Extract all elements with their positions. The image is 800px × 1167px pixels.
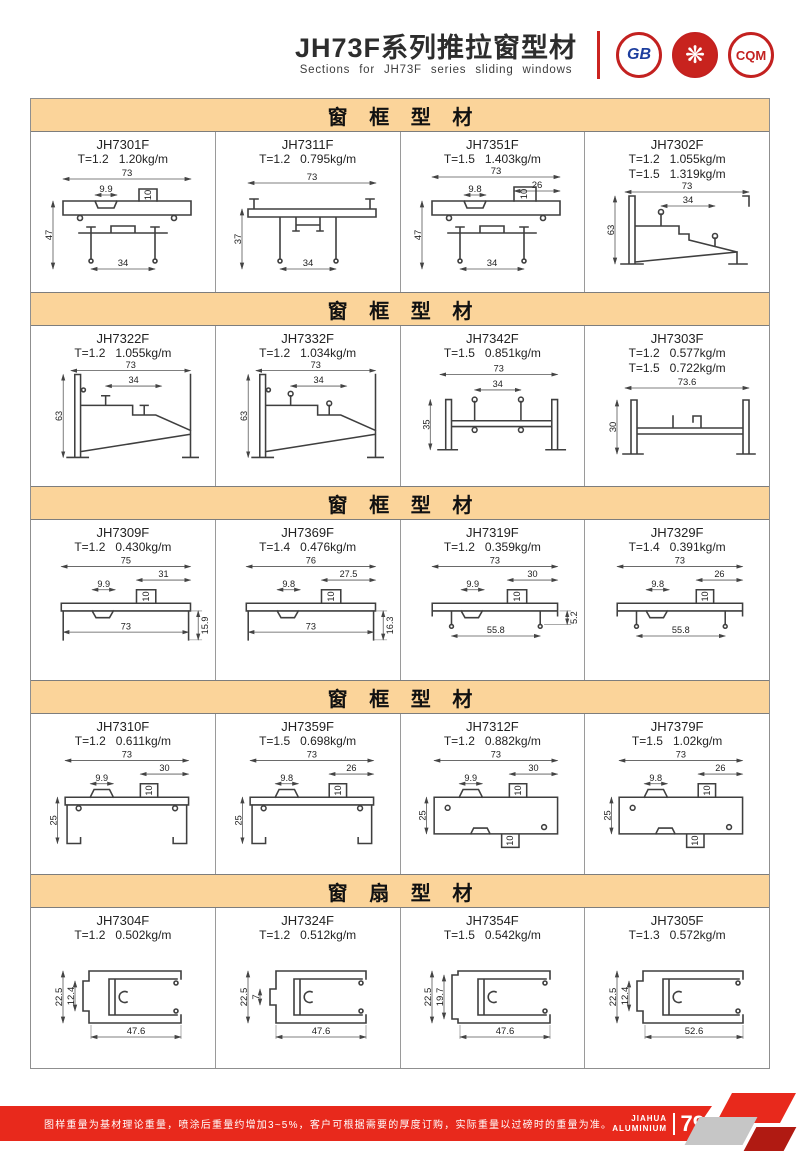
profile-spec: T=1.5 0.542kg/m — [401, 928, 585, 943]
dim-label: 25 — [233, 815, 243, 825]
section-header: 窗 框 型 材 — [31, 99, 769, 132]
dim-label: 35 — [422, 420, 432, 430]
page-title: JH73F系列推拉窗型材 — [295, 34, 577, 62]
page-header: JH73F系列推拉窗型材 Sections for JH73F series s… — [0, 0, 800, 84]
section-row: JH7304F T=1.2 0.502kg/m 22.5 12.4 47.6 J… — [31, 908, 769, 1068]
dim-label: 27.5 — [339, 569, 357, 579]
section-sash: 窗 扇 型 材 JH7304F T=1.2 0.502kg/m 22.5 12.… — [31, 874, 769, 1068]
profile-cell-jh7332f: JH7332F T=1.2 1.034kg/m 73 34 63 — [216, 326, 401, 486]
dim-label: 73 — [675, 556, 685, 566]
section-header: 窗 框 型 材 — [31, 486, 769, 520]
section-row: JH7322F T=1.2 1.055kg/m 73 34 63 JH7332F… — [31, 326, 769, 486]
profile-code: JH7310F — [31, 719, 215, 734]
dim-label: 34 — [683, 195, 694, 206]
dim-label: 73 — [121, 621, 131, 631]
dim-label: 10 — [702, 785, 712, 795]
profile-cell-jh7379f: JH7379F T=1.5 1.02kg/m 73 26 9.8 10 10 2… — [585, 714, 769, 874]
profile-drawing: 22.5 12.4 52.6 — [587, 943, 767, 1051]
dim-label: 9.8 — [280, 773, 293, 783]
dim-label: 19.7 — [435, 988, 446, 1007]
dim-label: 30 — [528, 569, 538, 579]
dim-label: 73 — [491, 167, 502, 177]
dim-label: 7 — [251, 994, 262, 999]
profile-spec: T=1.2 0.502kg/m — [31, 928, 215, 943]
dim-label: 47 — [44, 230, 55, 241]
dim-label: 34 — [487, 258, 498, 269]
profile-code: JH7351F — [401, 137, 585, 152]
profile-drawing: 73 34 63 — [218, 361, 398, 469]
dim-label: 9.8 — [651, 579, 664, 589]
profile-cell-jh7302f: JH7302F T=1.2 1.055kg/m T=1.5 1.319kg/m … — [585, 132, 769, 292]
dim-label: 9.9 — [99, 184, 112, 195]
profile-code: JH7354F — [401, 913, 585, 928]
profile-drawing: 73 30 9.9 10 10 25 — [402, 749, 582, 857]
dim-label: 34 — [313, 375, 323, 385]
dim-label: 73 — [682, 182, 693, 192]
dim-label: 9.9 — [97, 579, 110, 589]
dim-label: 15.9 — [200, 616, 210, 634]
profile-code: JH7342F — [401, 331, 585, 346]
dim-label: 55.8 — [487, 625, 505, 635]
dim-label: 22.5 — [54, 988, 65, 1007]
dim-label: 12.4 — [620, 987, 631, 1006]
dim-label: 31 — [158, 569, 168, 579]
dim-label: 25 — [48, 815, 58, 825]
dim-label: 34 — [493, 379, 503, 389]
profile-spec: T=1.2 0.430kg/m — [31, 540, 215, 555]
dim-label: 26 — [346, 763, 356, 773]
dim-label: 9.9 — [95, 773, 108, 783]
profile-code: JH7305F — [585, 913, 769, 928]
section-frame-4: 窗 框 型 材 JH7310F T=1.2 0.611kg/m 73 30 9.… — [31, 680, 769, 874]
dim-label: 76 — [305, 556, 315, 566]
profile-cell-jh7310f: JH7310F T=1.2 0.611kg/m 73 30 9.9 10 25 — [31, 714, 216, 874]
profile-cell-jh7304f: JH7304F T=1.2 0.502kg/m 22.5 12.4 47.6 — [31, 908, 216, 1068]
profile-spec: T=1.2 0.512kg/m — [216, 928, 400, 943]
profile-spec: T=1.4 0.476kg/m — [216, 540, 400, 555]
dim-label: 73 — [676, 750, 686, 760]
dim-label: 10 — [141, 591, 151, 601]
profile-drawing: 73 26 9.8 10 10 25 — [587, 749, 767, 857]
profile-spec: T=1.5 0.698kg/m — [216, 734, 400, 749]
dim-label: 73.6 — [678, 377, 697, 388]
section-row: JH7309F T=1.2 0.430kg/m 75 31 9.9 10 73 — [31, 520, 769, 680]
dim-label: 47.6 — [127, 1026, 146, 1037]
profile-code: JH7332F — [216, 331, 400, 346]
profile-spec: T=1.2 1.055kg/m T=1.5 1.319kg/m — [585, 152, 769, 182]
dim-label: 63 — [54, 411, 64, 421]
footer-note: 图样重量为基材理论重量，喷涂后重量约增加3~5%，客户可根据需要的厚度订购，实际… — [0, 1116, 612, 1131]
profile-spec: T=1.2 0.795kg/m — [216, 152, 400, 167]
dim-label: 73 — [491, 750, 501, 760]
profile-code: JH7369F — [216, 525, 400, 540]
dim-label: 63 — [606, 225, 617, 236]
dim-label: 10 — [506, 836, 516, 846]
dim-label: 9.9 — [467, 579, 480, 589]
dim-label: 63 — [239, 411, 249, 421]
section-frame-2: 窗 框 型 材 JH7322F T=1.2 1.055kg/m 73 34 63… — [31, 292, 769, 486]
section-frame-3: 窗 框 型 材 JH7309F T=1.2 0.430kg/m 75 31 9.… — [31, 486, 769, 680]
profile-drawing: 22.5 7 47.6 — [218, 943, 398, 1051]
dim-label: 34 — [302, 258, 313, 269]
profile-spec: T=1.5 1.02kg/m — [585, 734, 769, 749]
profile-drawing: 73 26 9.8 10 34 47 — [402, 167, 582, 275]
profile-drawing: 73 26 9.8 10 25 — [218, 749, 398, 857]
profile-code: JH7312F — [401, 719, 585, 734]
dim-label: 26 — [715, 763, 725, 773]
dim-label: 34 — [118, 258, 129, 269]
profile-spec: T=1.2 1.20kg/m — [31, 152, 215, 167]
dim-label: 30 — [529, 763, 539, 773]
section-row: JH7310F T=1.2 0.611kg/m 73 30 9.9 10 25 — [31, 714, 769, 874]
dim-label: 26 — [714, 569, 724, 579]
dim-label: 75 — [121, 556, 131, 566]
profile-spec: T=1.5 0.851kg/m — [401, 346, 585, 361]
dim-label: 30 — [159, 763, 169, 773]
quality-flower-logo: ❋ — [672, 32, 718, 78]
dim-label: 22.5 — [239, 988, 250, 1007]
profile-drawing: 73 34 63 — [587, 182, 767, 274]
profile-cell-jh7354f: JH7354F T=1.5 0.542kg/m 22.5 19.7 47.6 — [401, 908, 586, 1068]
profile-drawing: 73 34 63 — [33, 361, 213, 469]
profile-drawing: 73 9.9 10 34 47 — [33, 167, 213, 275]
profile-spec: T=1.2 0.359kg/m — [401, 540, 585, 555]
dim-label: 73 — [310, 361, 320, 370]
dim-label: 22.5 — [423, 988, 434, 1007]
profile-drawing: 73 26 9.8 10 55.8 — [587, 555, 767, 663]
profile-drawing: 75 31 9.9 10 73 15.9 — [33, 555, 213, 663]
header-divider — [597, 31, 600, 79]
dim-label: 73 — [305, 621, 315, 631]
dim-label: 10 — [144, 785, 154, 795]
page-subtitle: Sections for JH73F series sliding window… — [295, 64, 577, 76]
brand-name: JIAHUA ALUMINIUM — [612, 1114, 667, 1132]
dim-label: 37 — [233, 234, 244, 245]
dim-label: 52.6 — [685, 1026, 704, 1037]
section-header: 窗 框 型 材 — [31, 292, 769, 326]
cqm-logo-text: CQM — [736, 48, 766, 63]
dim-label: 10 — [143, 190, 154, 201]
dim-label: 10 — [690, 836, 700, 846]
profile-spec: T=1.4 0.391kg/m — [585, 540, 769, 555]
dim-label: 10 — [700, 591, 710, 601]
profile-cell-jh7305f: JH7305F T=1.3 0.572kg/m 22.5 12.4 52.6 — [585, 908, 769, 1068]
cqm-certification-logo: CQM — [728, 32, 774, 78]
profile-code: JH7324F — [216, 913, 400, 928]
profile-code: JH7311F — [216, 137, 400, 152]
profile-code: JH7302F — [585, 137, 769, 152]
dim-label: 73 — [494, 364, 504, 374]
profile-spec: T=1.2 0.882kg/m — [401, 734, 585, 749]
dim-label: 47.6 — [496, 1026, 515, 1037]
profile-cell-jh7322f: JH7322F T=1.2 1.055kg/m 73 34 63 — [31, 326, 216, 486]
profile-spec: T=1.3 0.572kg/m — [585, 928, 769, 943]
profile-spec: T=1.2 1.034kg/m — [216, 346, 400, 361]
decor-parallelogram-darkred — [744, 1127, 797, 1151]
dim-label: 22.5 — [608, 988, 619, 1007]
dim-label: 16.3 — [384, 616, 394, 634]
section-frame-1: 窗 框 型 材 JH7301F T=1.2 1.20kg/m 73 9.9 10 — [31, 99, 769, 292]
dim-label: 9.8 — [469, 184, 482, 195]
profile-drawing: 73 30 9.9 10 25 — [33, 749, 213, 857]
profile-drawing: 22.5 19.7 47.6 — [402, 943, 582, 1051]
flower-icon: ❋ — [685, 41, 705, 70]
profile-cell-jh7303f: JH7303F T=1.2 0.577kg/m T=1.5 0.722kg/m … — [585, 326, 769, 486]
header-title-block: JH73F系列推拉窗型材 Sections for JH73F series s… — [295, 34, 577, 76]
profile-spec: T=1.2 1.055kg/m — [31, 346, 215, 361]
profile-cell-jh7301f: JH7301F T=1.2 1.20kg/m 73 9.9 10 34 — [31, 132, 216, 292]
dim-label: 73 — [490, 556, 500, 566]
profile-drawing: 73 34 37 — [218, 167, 398, 275]
dim-label: 30 — [608, 422, 619, 433]
dim-label: 25 — [603, 810, 613, 820]
profile-code: JH7379F — [585, 719, 769, 734]
dim-label: 26 — [532, 180, 543, 191]
profile-drawing: 76 27.5 9.8 10 73 16.3 — [218, 555, 398, 663]
dim-label: 10 — [326, 591, 336, 601]
profile-cell-jh7342f: JH7342F T=1.5 0.851kg/m 73 34 35 — [401, 326, 586, 486]
profile-code: JH7319F — [401, 525, 585, 540]
profile-table: 窗 框 型 材 JH7301F T=1.2 1.20kg/m 73 9.9 10 — [30, 98, 770, 1069]
profile-code: JH7301F — [31, 137, 215, 152]
footer-bar: 图样重量为基材理论重量，喷涂后重量约增加3~5%，客户可根据需要的厚度订购，实际… — [0, 1106, 712, 1141]
profile-cell-jh7359f: JH7359F T=1.5 0.698kg/m 73 26 9.8 10 25 — [216, 714, 401, 874]
dim-label: 5.2 — [569, 611, 579, 624]
profile-drawing: 73.6 30 — [587, 376, 767, 468]
dim-label: 10 — [519, 189, 530, 200]
brand-line1: JIAHUA — [612, 1114, 667, 1123]
profile-cell-jh7369f: JH7369F T=1.4 0.476kg/m 76 27.5 9.8 10 7… — [216, 520, 401, 680]
section-header: 窗 框 型 材 — [31, 680, 769, 714]
dim-label: 73 — [122, 168, 133, 179]
profile-cell-jh7312f: JH7312F T=1.2 0.882kg/m 73 30 9.9 10 10 … — [401, 714, 586, 874]
profile-spec: T=1.2 0.611kg/m — [31, 734, 215, 749]
dim-label: 10 — [513, 785, 523, 795]
profile-cell-jh7319f: JH7319F T=1.2 0.359kg/m 73 30 9.9 10 55.… — [401, 520, 586, 680]
profile-code: JH7304F — [31, 913, 215, 928]
profile-drawing: 22.5 12.4 47.6 — [33, 943, 213, 1051]
brand-divider — [673, 1113, 675, 1135]
dim-label: 73 — [122, 750, 132, 760]
section-header: 窗 扇 型 材 — [31, 874, 769, 908]
profile-code: JH7322F — [31, 331, 215, 346]
gb-certification-logo: GB — [616, 32, 662, 78]
profile-cell-jh7351f: JH7351F T=1.5 1.403kg/m 73 26 9.8 10 — [401, 132, 586, 292]
dim-label: 10 — [512, 591, 522, 601]
dim-label: 9.9 — [465, 773, 478, 783]
profile-code: JH7303F — [585, 331, 769, 346]
dim-label: 34 — [128, 375, 138, 385]
dim-label: 12.4 — [66, 987, 77, 1006]
dim-label: 73 — [125, 361, 135, 370]
profile-drawing: 73 30 9.9 10 55.8 5.2 — [402, 555, 582, 663]
dim-label: 73 — [306, 750, 316, 760]
dim-label: 47 — [413, 230, 424, 241]
brand-line2: ALUMINIUM — [612, 1124, 667, 1133]
section-row: JH7301F T=1.2 1.20kg/m 73 9.9 10 34 — [31, 132, 769, 292]
dim-label: 10 — [332, 785, 342, 795]
dim-label: 9.8 — [282, 579, 295, 589]
profile-code: JH7309F — [31, 525, 215, 540]
profile-code: JH7329F — [585, 525, 769, 540]
dim-label: 47.6 — [311, 1026, 330, 1037]
dim-label: 9.8 — [650, 773, 663, 783]
profile-cell-jh7324f: JH7324F T=1.2 0.512kg/m 22.5 7 47.6 — [216, 908, 401, 1068]
profile-cell-jh7309f: JH7309F T=1.2 0.430kg/m 75 31 9.9 10 73 — [31, 520, 216, 680]
dim-label: 25 — [418, 810, 428, 820]
profile-spec: T=1.2 0.577kg/m T=1.5 0.722kg/m — [585, 346, 769, 376]
dim-label: 73 — [306, 172, 317, 183]
dim-label: 55.8 — [672, 625, 690, 635]
profile-spec: T=1.5 1.403kg/m — [401, 152, 585, 167]
profile-drawing: 73 34 35 — [402, 361, 582, 469]
profile-cell-jh7311f: JH7311F T=1.2 0.795kg/m 73 34 37 — [216, 132, 401, 292]
profile-cell-jh7329f: JH7329F T=1.4 0.391kg/m 73 26 9.8 10 55.… — [585, 520, 769, 680]
gb-logo-text: GB — [627, 46, 651, 64]
profile-code: JH7359F — [216, 719, 400, 734]
